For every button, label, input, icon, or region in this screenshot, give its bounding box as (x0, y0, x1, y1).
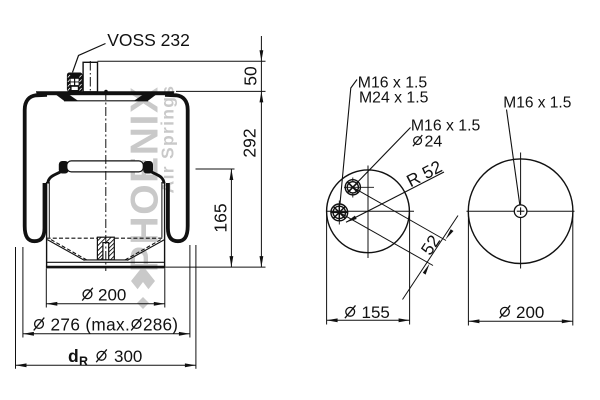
svg-text:M24 x 1.5: M24 x 1.5 (359, 89, 429, 106)
svg-text:24: 24 (425, 133, 443, 150)
svg-text:VOSS 232: VOSS 232 (107, 30, 190, 50)
svg-text:292: 292 (240, 128, 260, 157)
svg-text:300: 300 (114, 347, 142, 366)
svg-text:M16 x 1.5: M16 x 1.5 (503, 94, 571, 111)
svg-text:50: 50 (241, 66, 261, 86)
svg-text:155: 155 (362, 303, 390, 322)
svg-text:276 (max.: 276 (max. (51, 315, 131, 335)
svg-text:200: 200 (98, 285, 126, 304)
svg-text:R: R (79, 355, 88, 369)
svg-text:200: 200 (516, 303, 544, 322)
svg-text:165: 165 (211, 203, 231, 232)
svg-text:d: d (68, 346, 79, 366)
svg-text:286): 286) (143, 315, 178, 335)
svg-text:M16 x 1.5: M16 x 1.5 (411, 117, 481, 134)
